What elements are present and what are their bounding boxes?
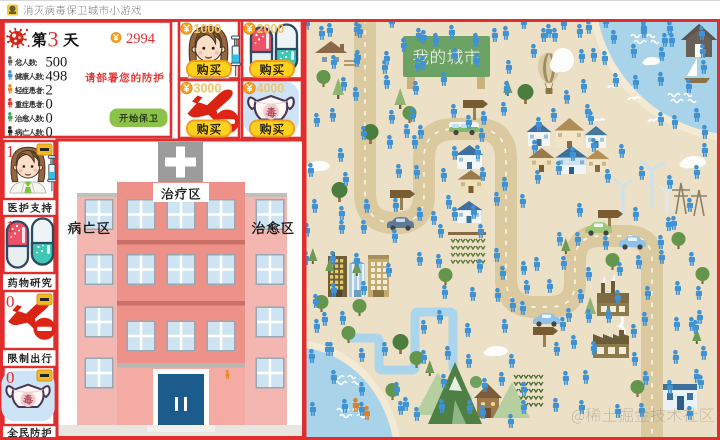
svg-text:4000: 4000 [257, 82, 285, 96]
svg-text:2994: 2994 [126, 31, 156, 47]
svg-text:0: 0 [6, 292, 15, 311]
svg-text:0: 0 [6, 368, 15, 387]
svg-text:0: 0 [46, 125, 53, 141]
svg-text:1: 1 [6, 217, 15, 236]
svg-text:3: 3 [48, 27, 59, 52]
svg-text:3000: 3000 [194, 82, 222, 96]
svg-text:1000: 1000 [194, 22, 222, 36]
svg-text:1: 1 [6, 142, 15, 161]
svg-text:2000: 2000 [257, 22, 285, 36]
